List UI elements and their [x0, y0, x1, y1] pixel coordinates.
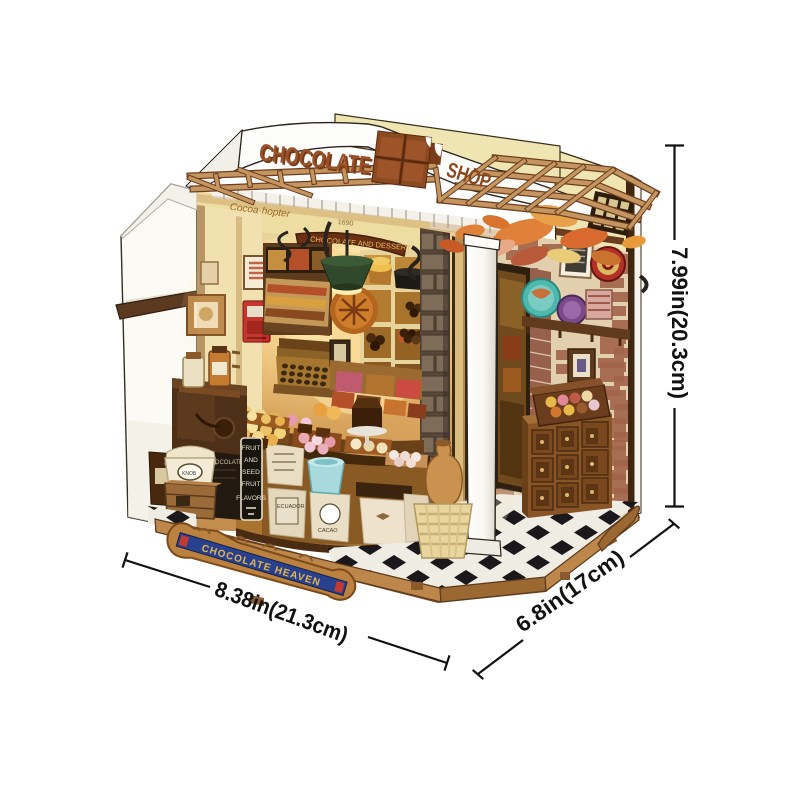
svg-text:ECUADOR: ECUADOR — [277, 504, 305, 510]
svg-text:7.99in(20.3cm): 7.99in(20.3cm) — [667, 247, 692, 399]
svg-text:FLAVORS: FLAVORS — [236, 495, 267, 502]
svg-text:FRUIT: FRUIT — [241, 445, 260, 452]
svg-text:KNOB: KNOB — [182, 471, 197, 477]
svg-text:SEED: SEED — [242, 469, 260, 476]
svg-text:FRUIT: FRUIT — [241, 481, 260, 488]
svg-text:CACAO: CACAO — [318, 528, 338, 534]
svg-text:AND: AND — [244, 457, 258, 464]
